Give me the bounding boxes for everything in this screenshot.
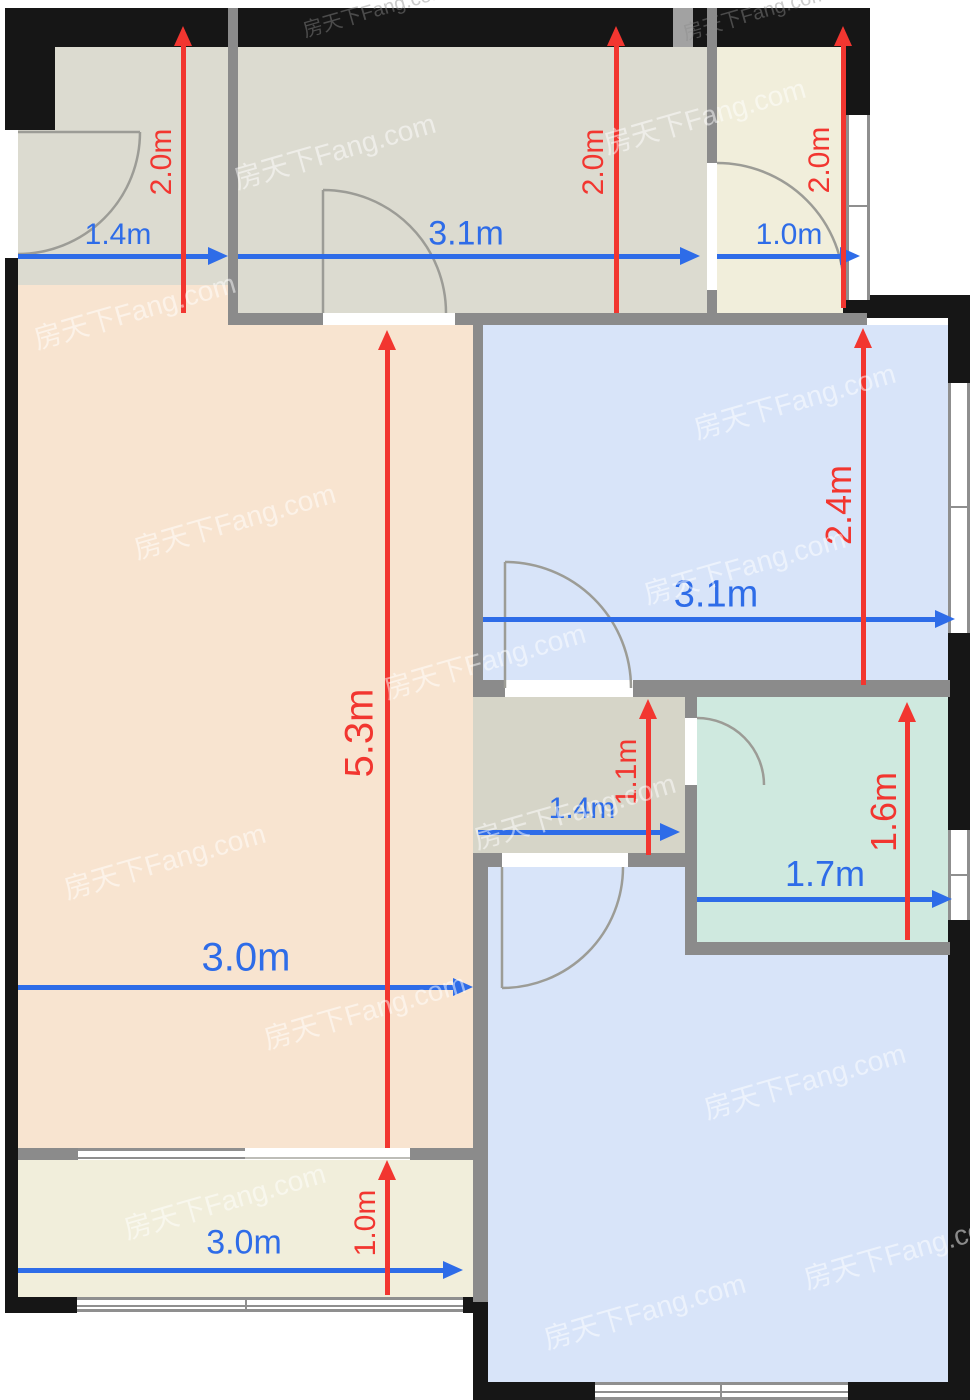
wall-top-joint <box>673 8 693 47</box>
dim-arrow-top-right-height <box>841 46 846 308</box>
dim-label-hallway-width: 1.4m <box>549 792 616 826</box>
dim-label-balcony-width: 3.0m <box>206 1224 282 1263</box>
arrow-head-icon <box>834 26 852 46</box>
wall-balcony-stub-right <box>410 1148 473 1160</box>
wall-right-bottom-seg <box>948 920 970 1400</box>
window-right-bedroom <box>948 383 970 633</box>
arrow-head-icon <box>378 1160 396 1180</box>
window-balcony-railing <box>77 1297 463 1312</box>
dim-arrow-top-left-height <box>181 46 186 313</box>
dim-label-top-left-width: 1.4m <box>85 218 152 252</box>
wall-balcony-corner-left <box>5 1297 77 1313</box>
dim-label-bathroom-height: 1.6m <box>863 772 905 852</box>
door-opening-balcony-slider <box>245 1148 410 1159</box>
dim-arrow-bedroom-width <box>483 617 935 622</box>
arrow-head-icon <box>378 330 396 350</box>
door-opening-bathroom <box>685 718 697 785</box>
wall-left <box>5 258 18 1313</box>
room-lower-bedroom-upper <box>488 867 685 955</box>
dim-arrow-top-right-width <box>717 254 840 259</box>
window-top-right-room <box>846 115 870 300</box>
arrow-head-icon <box>898 702 916 722</box>
dim-arrow-living-height <box>385 350 390 1148</box>
dim-label-top-middle-width: 3.1m <box>428 215 504 254</box>
dim-label-top-middle-height: 2.0m <box>577 129 611 196</box>
window-divider <box>77 1305 463 1307</box>
dim-arrow-balcony-width <box>18 1268 443 1273</box>
dim-arrow-top-middle-height <box>614 46 619 313</box>
window-divider <box>720 1385 722 1397</box>
window-divider <box>951 874 967 876</box>
arrow-head-icon <box>607 26 625 46</box>
window-divider <box>849 205 867 207</box>
arrow-head-icon <box>854 328 872 348</box>
wall-topright-corner-upper <box>843 8 870 115</box>
dim-arrow-balcony-height <box>385 1180 390 1295</box>
wall-balcony-stub-left <box>18 1148 78 1160</box>
wall-bathroom-bottom <box>685 942 950 955</box>
dim-arrow-top-left-width <box>18 254 208 259</box>
arrow-head-icon <box>174 26 192 46</box>
arrow-head-icon <box>935 610 955 628</box>
wall-living-bedroom-divider <box>473 867 488 1302</box>
door-opening-top-middle <box>323 313 455 325</box>
arrow-head-icon <box>208 247 228 265</box>
wall-room1-room2 <box>228 8 238 325</box>
dim-label-bathroom-width: 1.7m <box>785 853 865 895</box>
floor-plan: 1.4m 3.1m 1.0m 3.1m 1.4m 1.7m 3.0m 3.0m … <box>0 0 972 1400</box>
door-opening-bedroom <box>505 680 633 697</box>
arrow-head-icon <box>639 699 657 719</box>
wall-hallway-bottom-left <box>473 853 502 867</box>
wall-bedroom-bottom-right <box>633 680 950 697</box>
arrow-head-icon <box>680 247 700 265</box>
window-balcony-slider-left <box>78 1148 245 1159</box>
room-living-upper-patch <box>18 285 228 325</box>
room-living <box>18 325 473 1148</box>
arrow-head-icon <box>453 978 473 996</box>
dim-label-top-right-height: 2.0m <box>803 127 837 194</box>
dim-label-top-left-height: 2.0m <box>145 129 179 196</box>
wall-hallway-bottom-right <box>628 853 697 867</box>
door-opening-lower-bedroom <box>502 853 628 867</box>
arrow-head-icon <box>932 890 952 908</box>
window-lower-bedroom <box>595 1382 848 1400</box>
wall-bedroom-bottom-left <box>473 680 505 697</box>
wall-bedroom-left <box>473 325 483 680</box>
dim-arrow-bathroom-width <box>697 897 932 902</box>
wall-bottom-left-seg <box>473 1382 595 1400</box>
dim-label-living-height: 5.3m <box>338 689 383 778</box>
wall-left-upper <box>5 8 18 130</box>
dim-arrow-hallway-width <box>478 830 660 835</box>
window-divider <box>951 506 967 508</box>
dim-label-hallway-height: 1.1m <box>610 739 644 806</box>
wall-band-left <box>238 313 323 325</box>
arrow-head-icon <box>443 1261 463 1279</box>
dim-label-top-right-width: 1.0m <box>756 218 823 252</box>
wall-bathroom-left-upper <box>685 697 697 718</box>
dim-arrow-hallway-height <box>646 719 651 855</box>
door-opening-top-right <box>707 163 717 290</box>
wall-top <box>5 8 866 47</box>
dim-label-bedroom-width: 3.1m <box>674 574 758 617</box>
window-divider <box>78 1157 245 1159</box>
dim-label-balcony-height: 1.0m <box>349 1190 383 1257</box>
room-right-bedroom <box>483 325 948 680</box>
room-top-middle <box>238 47 707 313</box>
wall-band-right <box>455 313 867 325</box>
arrow-head-icon <box>660 823 680 841</box>
window-divider <box>245 1300 247 1309</box>
room-bathroom <box>697 697 948 942</box>
door-opening-entrance <box>5 130 18 258</box>
dim-label-living-width: 3.0m <box>202 936 291 981</box>
room-lower-bedroom <box>488 955 948 1382</box>
wall-bathroom-left-lower <box>685 785 697 955</box>
wall-room2-room3-lower <box>707 290 717 313</box>
dim-label-bedroom-height: 2.4m <box>818 465 860 545</box>
dim-arrow-bedroom-height <box>861 348 866 685</box>
dim-arrow-bathroom-height <box>905 722 910 940</box>
wall-right-extension-top <box>867 295 970 318</box>
wall-room2-room3 <box>707 8 717 163</box>
wall-right-mid-seg <box>948 633 970 830</box>
